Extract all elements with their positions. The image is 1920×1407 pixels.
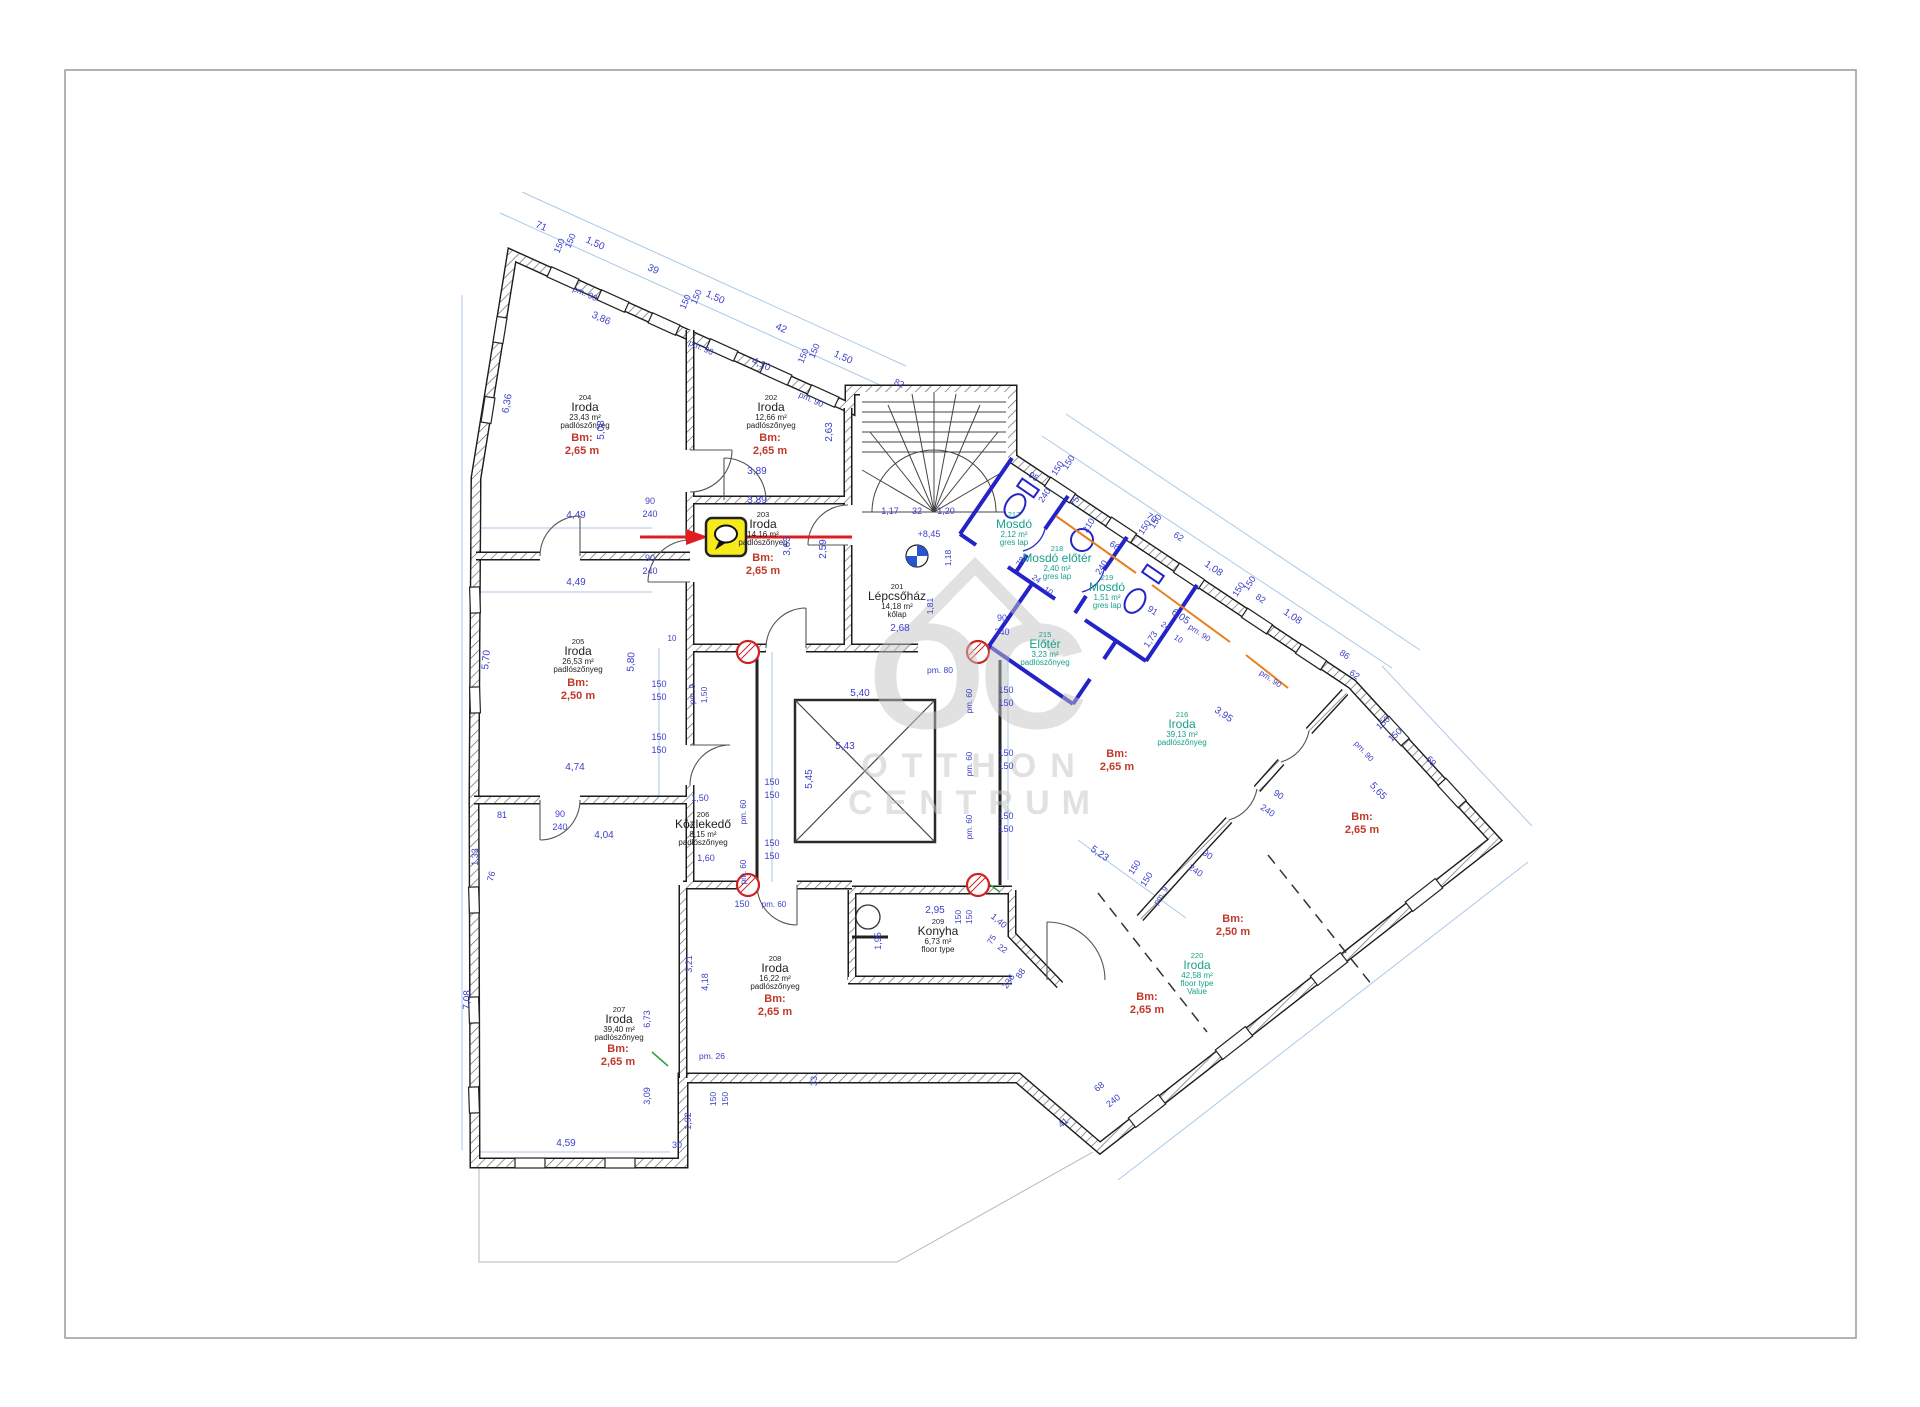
room-name: Mosdó: [996, 517, 1032, 531]
dimension-label: 90: [645, 553, 655, 563]
dimension-label: 1,92: [683, 1112, 693, 1130]
dimension-label: 30: [672, 1140, 682, 1150]
room-height-value: 2,65 m: [746, 565, 780, 577]
dimension-label: 1,50: [832, 349, 855, 367]
dimension-label: 3,21: [684, 955, 694, 973]
room-height-label: Bm:: [567, 677, 588, 689]
dimension-label: 1,20: [937, 506, 955, 516]
room-height-label: Bm:: [764, 993, 785, 1005]
dimension-label: 150: [651, 692, 666, 702]
dimension-label: 1,08: [1281, 607, 1304, 627]
dimension-label: 1,40: [989, 911, 1009, 930]
dimension-label: 1,95: [873, 932, 883, 950]
dimension-label: 86: [1338, 648, 1352, 662]
dimension-label: 150: [998, 761, 1013, 771]
dimension-label: pm. 60: [739, 799, 748, 824]
dimension-label: 240: [994, 627, 1009, 637]
room-floor-type: padlószőnyeg: [594, 1033, 643, 1042]
dimension-label: pm. 26: [699, 1051, 725, 1061]
dimension-label: 5,08: [596, 420, 607, 440]
dimension-label: 1,17: [881, 506, 899, 516]
room-name: Iroda: [564, 644, 592, 658]
dimension-label: 150: [998, 748, 1013, 758]
dimension-label: 1,50: [584, 235, 607, 253]
dimension-label: 150: [998, 811, 1013, 821]
floor-plan-svg: OC OTTHON CENTRUM 201Lépcsőház14,18 m²kő…: [0, 0, 1920, 1407]
room-floor-type: gres lap: [1000, 538, 1029, 547]
dimension-label: 90: [555, 809, 565, 819]
dimension-label: 81: [497, 810, 507, 820]
room-height-value: 2,65 m: [1345, 824, 1379, 836]
dimension-label: 150: [720, 1092, 730, 1106]
room-floor-type: padlószőnyeg: [750, 982, 799, 991]
dimension-label: 150: [998, 698, 1013, 708]
room-name: Mosdó előtér: [1022, 551, 1091, 565]
dimension-label: 240: [1259, 802, 1277, 819]
room-height-value: 2,65 m: [601, 1056, 635, 1068]
dimension-label: 150: [964, 910, 974, 924]
room-name: Iroda: [1168, 717, 1196, 731]
dimension-label: 5,45: [804, 769, 815, 789]
room-floor-type: gres lap: [1043, 572, 1072, 581]
room-name: Iroda: [605, 1012, 633, 1026]
level-marker-symbol: [906, 545, 928, 567]
room-name: Közlekedő: [675, 817, 731, 831]
room-extra: Value: [1187, 987, 1207, 996]
dimension-label: 1,18: [943, 549, 953, 566]
accent-line-orange: [1056, 516, 1288, 688]
room-name: Iroda: [757, 400, 785, 414]
dimension-label: 90: [1272, 788, 1286, 802]
dimension-label: 150: [1138, 870, 1155, 888]
room-floor-type: padlószőnyeg: [1020, 658, 1069, 667]
dimension-label: 33: [809, 1076, 819, 1086]
dimension-label: 150: [651, 732, 666, 742]
dimension-label: 150: [651, 745, 666, 755]
dimension-label: 2,59: [818, 539, 829, 559]
dimension-label: pm. 60: [965, 688, 974, 713]
dimension-label: 71: [534, 219, 549, 234]
column-marker: [967, 874, 989, 896]
dimension-label: 150: [764, 777, 779, 787]
dimension-label: 1,50: [699, 686, 709, 703]
room-name: Konyha: [918, 924, 959, 938]
dimension-label: 150: [764, 851, 779, 861]
dimension-label: 3,95: [1212, 705, 1235, 725]
room-height-label: Bm:: [1351, 811, 1372, 823]
room-floor-type: padlószőnyeg: [553, 665, 602, 674]
dimension-label: 32: [912, 506, 922, 516]
dimension-label: pm. 60: [965, 814, 974, 839]
dimension-label: 5,80: [626, 651, 638, 671]
dimension-label: 150: [708, 1092, 718, 1106]
floor-plan-page: OC OTTHON CENTRUM 201Lépcsőház14,18 m²kő…: [0, 0, 1920, 1407]
dimension-label: 75: [985, 932, 999, 946]
dimension-label: 3,89: [747, 495, 767, 506]
dimension-label: 150: [998, 824, 1013, 834]
dimension-label: 5,43: [835, 741, 855, 752]
dimension-label: pm. 60: [762, 900, 787, 909]
dimension-label: 90: [997, 613, 1007, 623]
room-height-value: 2,65 m: [758, 1006, 792, 1018]
dimension-label: 90: [645, 496, 655, 506]
dimension-label: 1,50: [691, 793, 709, 803]
room-floor-type: padlószőnyeg: [678, 838, 727, 847]
dimension-label: 5,40: [850, 688, 870, 699]
room-floor-type: gres lap: [1093, 601, 1122, 610]
dimension-label: 150: [651, 679, 666, 689]
dimension-label: 1,50: [704, 289, 727, 307]
dimension-label: 1,08: [1202, 559, 1225, 579]
room-height-label: Bm:: [607, 1043, 628, 1055]
dimension-label: 4,49: [566, 577, 586, 588]
dimension-label: 150: [1126, 858, 1143, 876]
room-height-label: Bm:: [1106, 748, 1127, 760]
dimension-label: 4,74: [565, 762, 585, 773]
dimension-label: pm. 90: [1352, 739, 1376, 763]
column-marker: [737, 641, 759, 663]
room-floor-type: padlószőnyeg: [1157, 738, 1206, 747]
room-height-value: 2,65 m: [1100, 761, 1134, 773]
room-height-label: Bm:: [1222, 913, 1243, 925]
dimension-label: 3,63: [782, 536, 793, 556]
dimension-label: 76: [485, 870, 497, 882]
dimension-label: pm. 60: [965, 751, 974, 776]
dimension-label: 150: [807, 342, 822, 360]
room-height-value: 2,65 m: [1130, 1004, 1164, 1016]
dimension-label: 240: [642, 566, 657, 576]
room-height-value: 2,50 m: [561, 690, 595, 702]
annotation-marker[interactable]: [706, 518, 746, 556]
room-name: Iroda: [761, 961, 789, 975]
room-floor-type: padlószőnyeg: [738, 538, 787, 547]
dimension-label: 240: [552, 822, 567, 832]
dimension-label: pm. 80: [927, 665, 953, 675]
dimension-label: pm. 90: [1258, 668, 1284, 689]
room-height-value: 2,65 m: [565, 445, 599, 457]
dimension-label: 68: [1092, 1080, 1106, 1094]
dimension-label: +8,45: [918, 529, 941, 539]
dimension-label: 1,60: [697, 853, 715, 863]
room-height-label: Bm:: [752, 552, 773, 564]
dimension-label: 4,59: [556, 1138, 576, 1149]
room-name: Iroda: [749, 517, 777, 531]
dimension-label: pm. 60: [739, 859, 748, 884]
dimension-label: 10: [668, 634, 677, 643]
dimension-label: 150: [998, 685, 1013, 695]
dimension-label: 4,18: [700, 973, 710, 991]
dimension-label: 150: [764, 838, 779, 848]
dimension-label: 39: [646, 262, 661, 277]
dimension-label: 150: [689, 288, 704, 306]
room-name: Mosdó: [1089, 580, 1125, 594]
dimension-label: 82: [1254, 592, 1268, 606]
dimension-label: 2,95: [925, 905, 945, 916]
room-name: Iroda: [571, 400, 599, 414]
dimension-label: 6,73: [642, 1010, 652, 1028]
dimension-label: 5,70: [480, 649, 493, 670]
dimension-label: 3,89: [747, 466, 767, 477]
dimension-label: pm. 9: [688, 683, 697, 704]
dimension-label: 91: [1146, 604, 1160, 618]
room-floor-type: kőlap: [887, 610, 907, 619]
dimension-label: 2,63: [824, 422, 835, 442]
dimension-label: 22: [996, 942, 1010, 956]
dimension-label: 150: [734, 899, 749, 909]
dimension-label: 10: [1172, 633, 1185, 646]
room-height-value: 2,65 m: [753, 445, 787, 457]
dimension-label: 6,36: [500, 393, 514, 415]
room-height-label: Bm:: [1136, 991, 1157, 1003]
dimension-label: 4,49: [566, 510, 586, 521]
dimension-label: 1,33: [470, 848, 480, 866]
dimension-label: 7,08: [462, 990, 474, 1010]
room-name: Előtér: [1029, 637, 1060, 651]
dimension-label: 1,81: [925, 597, 935, 614]
room-height-label: Bm:: [759, 432, 780, 444]
room-floor-type: padlószőnyeg: [746, 421, 795, 430]
watermark-otthon: OTTHON: [861, 747, 1089, 785]
room-height-label: Bm:: [571, 432, 592, 444]
kitchen-sink: [856, 905, 880, 929]
dimension-label: 5,65: [1367, 780, 1389, 802]
dimension-label: 62: [1172, 530, 1186, 544]
room-height-value: 2,50 m: [1216, 926, 1250, 938]
dimension-label: 150: [764, 790, 779, 800]
dimension-label: 2,68: [890, 623, 910, 634]
dimension-label: 42: [774, 321, 789, 336]
watermark-centrum: CENTRUM: [848, 784, 1102, 822]
room-floor-type: floor type: [922, 945, 955, 954]
room-name: Lépcsőház: [868, 589, 926, 603]
dimension-label: 150: [1060, 453, 1077, 471]
dimension-label: 240: [642, 509, 657, 519]
room-name: Iroda: [1183, 958, 1211, 972]
dimension-label: 150: [953, 910, 963, 924]
dimension-label: 3,09: [642, 1087, 652, 1105]
arrow-right-icon: [686, 529, 708, 545]
dimension-label: 4,04: [594, 830, 614, 841]
dimension-label: 3,86: [590, 310, 613, 328]
dimension-label: 240: [1104, 1092, 1122, 1109]
